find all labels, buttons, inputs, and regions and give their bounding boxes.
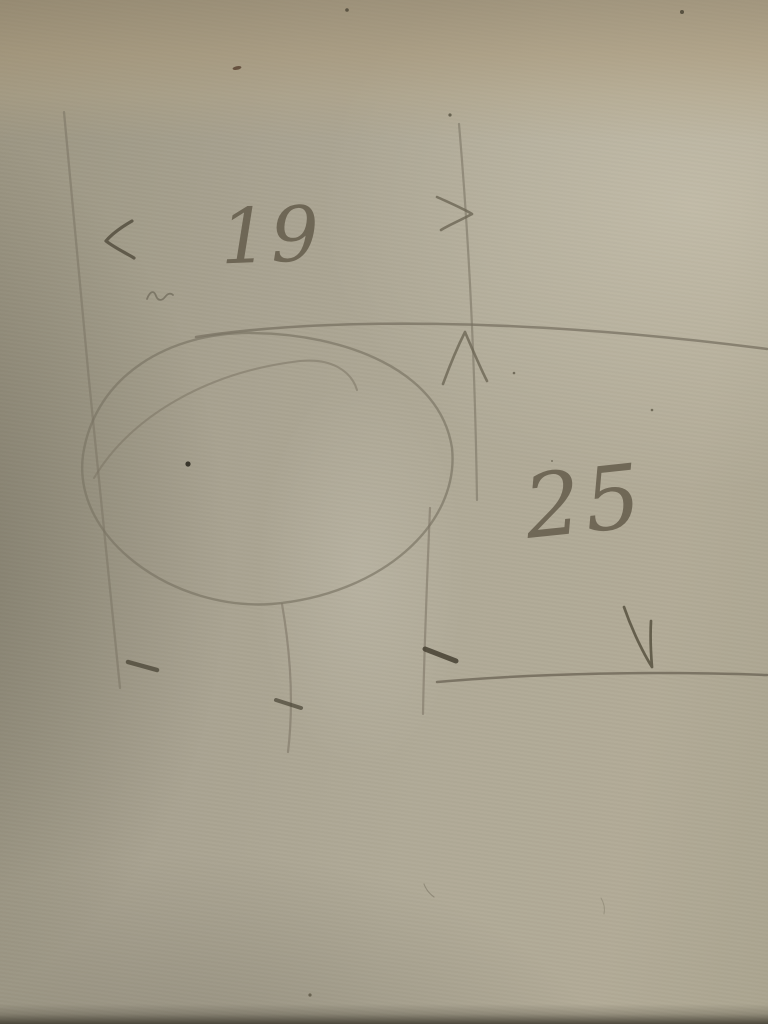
height-arrowhead-up [443, 332, 487, 384]
width-dimension-label: 19 [219, 189, 323, 281]
paper-speck [448, 113, 451, 116]
ellipse-group [82, 333, 452, 604]
paper-speck [345, 8, 349, 12]
paper-photo: 19 25 [0, 0, 768, 1024]
paper-speck [651, 409, 654, 412]
paper-speck [680, 10, 684, 14]
ellipse-inner-arc [94, 361, 357, 478]
width-dimension-group: 19 [64, 112, 477, 688]
height-arrowhead-down [624, 607, 652, 667]
paper-speck [308, 993, 311, 996]
extension-lines-group [128, 508, 456, 752]
paper-speck [513, 372, 516, 375]
bottom-boundary-line [437, 673, 767, 682]
paper-speck [551, 460, 553, 462]
paper-fiber [601, 898, 604, 914]
pencil-sketch-drawing: 19 25 [0, 0, 768, 1024]
left-end-tick [128, 662, 157, 670]
middle-end-tick [276, 700, 301, 708]
width-arrowhead-left [106, 221, 134, 258]
right-end-tick [425, 649, 456, 661]
height-dimension-label: 25 [518, 444, 649, 559]
paper-speck-brown [232, 65, 242, 70]
left-dimension-line [64, 112, 120, 688]
middle-extension-line [282, 604, 291, 752]
top-boundary-line [196, 324, 767, 349]
pencil-squiggle [147, 292, 173, 300]
right-extension-line [423, 508, 430, 714]
paper-fiber [424, 884, 434, 897]
right-dimension-line [459, 124, 477, 500]
paper-speck [185, 461, 190, 466]
sketch-ellipse [82, 333, 452, 604]
